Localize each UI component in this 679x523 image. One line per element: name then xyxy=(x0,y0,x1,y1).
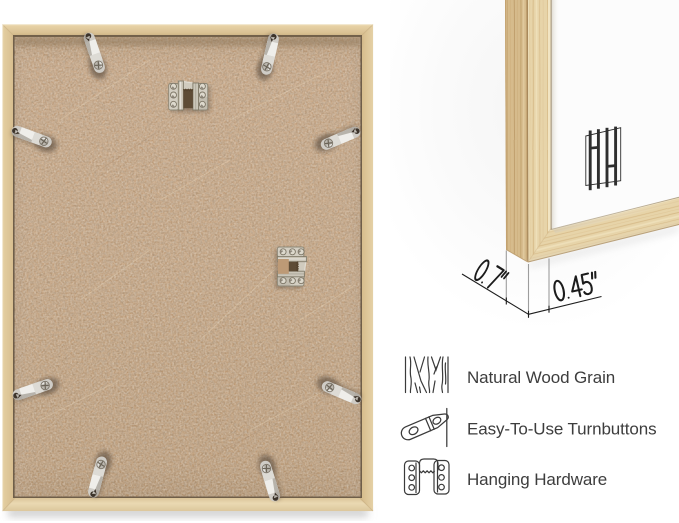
svg-text:Natural Wood Grain: Natural Wood Grain xyxy=(467,368,615,387)
svg-text:Easy-To-Use Turnbuttons: Easy-To-Use Turnbuttons xyxy=(467,420,657,439)
svg-text:Hanging Hardware: Hanging Hardware xyxy=(467,470,607,489)
